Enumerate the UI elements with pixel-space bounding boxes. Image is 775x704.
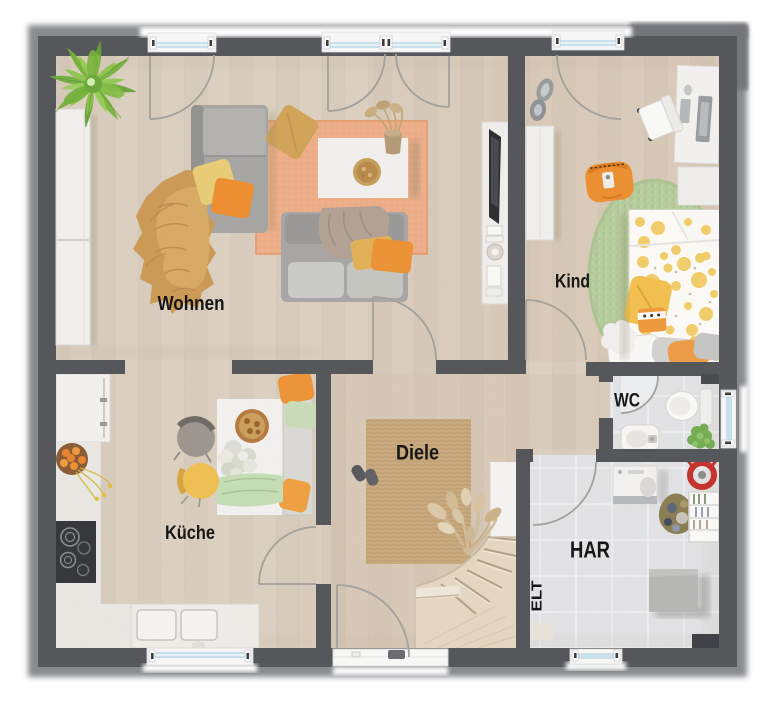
- svg-text:Diele: Diele: [396, 442, 439, 465]
- svg-text:Wohnen: Wohnen: [158, 292, 225, 315]
- svg-text:ELT: ELT: [530, 580, 546, 611]
- svg-text:HAR: HAR: [570, 537, 610, 563]
- svg-text:Küche: Küche: [165, 522, 215, 544]
- svg-text:WC: WC: [614, 391, 640, 412]
- svg-text:Kind: Kind: [555, 271, 590, 293]
